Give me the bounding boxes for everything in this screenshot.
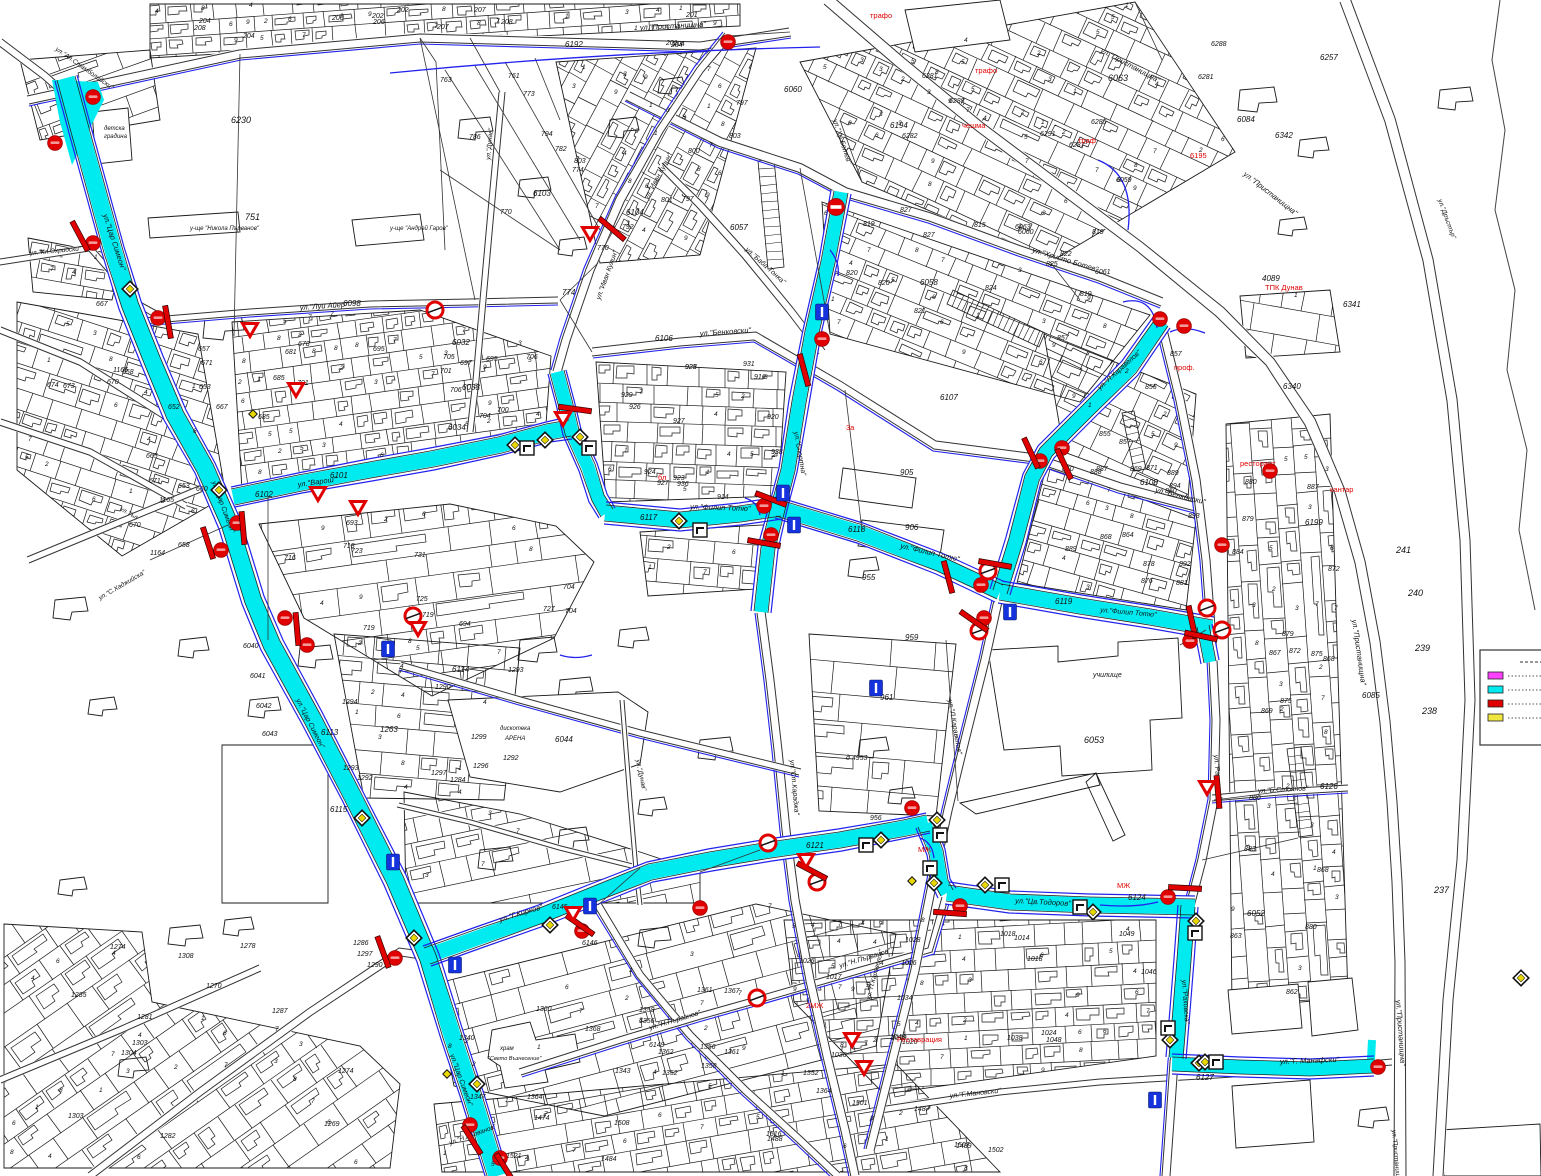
svg-text:1: 1 bbox=[47, 357, 51, 364]
svg-text:6034: 6034 bbox=[448, 423, 466, 432]
svg-text:5: 5 bbox=[268, 431, 272, 438]
svg-text:6118: 6118 bbox=[848, 525, 866, 534]
svg-text:207: 207 bbox=[473, 7, 487, 14]
svg-text:6: 6 bbox=[92, 496, 96, 503]
svg-text:5: 5 bbox=[715, 392, 719, 399]
svg-text:7: 7 bbox=[393, 337, 397, 344]
svg-text:7: 7 bbox=[738, 990, 742, 997]
svg-text:8: 8 bbox=[201, 5, 205, 12]
svg-text:803: 803 bbox=[729, 133, 741, 140]
svg-text:6230: 6230 bbox=[231, 115, 251, 125]
svg-text:2: 2 bbox=[357, 640, 362, 647]
svg-text:2: 2 bbox=[263, 18, 268, 25]
svg-text:3: 3 bbox=[690, 951, 694, 958]
svg-text:5: 5 bbox=[465, 421, 469, 428]
svg-text:8: 8 bbox=[293, 1076, 297, 1083]
svg-text:8: 8 bbox=[477, 20, 481, 27]
svg-text:701: 701 bbox=[440, 368, 452, 375]
svg-text:6342: 6342 bbox=[1275, 131, 1293, 140]
svg-text:1: 1 bbox=[582, 64, 586, 71]
svg-text:1: 1 bbox=[649, 102, 653, 109]
svg-text:7: 7 bbox=[572, 1147, 576, 1154]
svg-text:1516: 1516 bbox=[766, 1131, 782, 1138]
svg-text:3: 3 bbox=[860, 57, 864, 64]
svg-text:2: 2 bbox=[277, 448, 282, 455]
svg-text:1285: 1285 bbox=[71, 992, 87, 999]
svg-text:208: 208 bbox=[193, 25, 206, 32]
svg-text:6: 6 bbox=[288, 16, 292, 23]
svg-text:4: 4 bbox=[964, 37, 968, 44]
svg-text:920: 920 bbox=[767, 414, 779, 421]
svg-text:5: 5 bbox=[792, 923, 796, 930]
svg-text:888: 888 bbox=[1090, 469, 1102, 476]
svg-text:695: 695 bbox=[373, 346, 385, 353]
svg-text:926: 926 bbox=[629, 404, 641, 411]
svg-text:8: 8 bbox=[628, 178, 632, 185]
svg-text:3: 3 bbox=[374, 379, 378, 386]
svg-text:3: 3 bbox=[1267, 803, 1271, 810]
svg-text:1046: 1046 bbox=[1141, 969, 1157, 976]
svg-text:1: 1 bbox=[565, 13, 569, 20]
svg-text:1364: 1364 bbox=[527, 1094, 543, 1101]
svg-text:9: 9 bbox=[1072, 393, 1076, 400]
svg-text:863: 863 bbox=[1230, 933, 1242, 940]
svg-text:1036: 1036 bbox=[831, 1052, 847, 1059]
svg-text:929: 929 bbox=[621, 392, 633, 399]
svg-text:1: 1 bbox=[35, 1104, 39, 1111]
svg-text:5: 5 bbox=[1151, 431, 1155, 438]
svg-text:6057: 6057 bbox=[730, 223, 748, 232]
svg-text:3: 3 bbox=[444, 350, 448, 357]
svg-text:9: 9 bbox=[851, 986, 855, 993]
svg-text:825: 825 bbox=[1046, 261, 1058, 268]
svg-text:801: 801 bbox=[661, 197, 673, 204]
svg-text:6: 6 bbox=[1078, 1029, 1082, 1036]
svg-text:6: 6 bbox=[623, 1138, 627, 1145]
svg-text:6192: 6192 bbox=[565, 40, 583, 49]
svg-text:770: 770 bbox=[597, 245, 609, 252]
svg-text:1502: 1502 bbox=[988, 1147, 1004, 1154]
svg-text:6: 6 bbox=[397, 713, 401, 720]
svg-text:9: 9 bbox=[483, 364, 487, 371]
svg-text:906: 906 bbox=[905, 523, 919, 532]
svg-text:трафо: трафо bbox=[975, 66, 997, 75]
svg-text:1521: 1521 bbox=[506, 1153, 522, 1160]
svg-text:6288: 6288 bbox=[1211, 41, 1227, 48]
svg-text:1: 1 bbox=[885, 1136, 889, 1143]
svg-text:6041: 6041 bbox=[250, 673, 266, 680]
svg-text:869: 869 bbox=[1130, 466, 1142, 473]
svg-text:6: 6 bbox=[512, 525, 516, 532]
svg-text:652: 652 bbox=[168, 404, 180, 411]
svg-text:4: 4 bbox=[401, 692, 405, 699]
svg-text:6: 6 bbox=[824, 210, 828, 217]
svg-text:6: 6 bbox=[380, 452, 384, 459]
svg-text:725: 725 bbox=[416, 596, 428, 603]
svg-text:3: 3 bbox=[474, 383, 478, 390]
svg-text:685: 685 bbox=[273, 375, 285, 382]
svg-text:1: 1 bbox=[707, 103, 711, 110]
svg-text:7: 7 bbox=[768, 903, 772, 910]
svg-text:3: 3 bbox=[1335, 894, 1339, 901]
svg-text:7: 7 bbox=[497, 649, 501, 656]
svg-text:1014: 1014 bbox=[1014, 935, 1030, 942]
svg-text:5: 5 bbox=[683, 486, 687, 493]
svg-text:у-ще "Андрей Гаров": у-ще "Андрей Гаров" bbox=[389, 225, 449, 232]
svg-text:7: 7 bbox=[1146, 1008, 1150, 1015]
svg-text:1284: 1284 bbox=[450, 777, 466, 784]
svg-text:763: 763 bbox=[440, 77, 452, 84]
svg-text:5: 5 bbox=[708, 1083, 712, 1090]
svg-text:3: 3 bbox=[1308, 504, 1312, 511]
svg-text:1270: 1270 bbox=[206, 983, 222, 990]
svg-text:1: 1 bbox=[629, 967, 633, 974]
svg-text:800: 800 bbox=[688, 148, 700, 155]
svg-text:6084: 6084 bbox=[1237, 115, 1255, 124]
svg-text:7: 7 bbox=[838, 984, 842, 991]
svg-text:1: 1 bbox=[99, 1087, 103, 1094]
svg-text:7: 7 bbox=[595, 203, 599, 210]
svg-text:6058: 6058 bbox=[920, 278, 938, 287]
svg-text:8: 8 bbox=[1130, 513, 1134, 520]
svg-text:6: 6 bbox=[114, 402, 118, 409]
svg-text:1296: 1296 bbox=[473, 763, 489, 770]
svg-text:6: 6 bbox=[137, 1154, 141, 1161]
svg-text:4: 4 bbox=[811, 922, 815, 929]
svg-text:6: 6 bbox=[843, 1143, 847, 1150]
svg-text:9: 9 bbox=[359, 594, 363, 601]
svg-text:6257: 6257 bbox=[1320, 53, 1338, 62]
svg-text:9: 9 bbox=[1231, 906, 1235, 913]
svg-text:Реставрация: Реставрация bbox=[897, 1035, 942, 1044]
svg-text:6291: 6291 bbox=[1040, 131, 1056, 138]
svg-text:6: 6 bbox=[56, 958, 60, 965]
svg-text:6199: 6199 bbox=[1305, 518, 1323, 527]
svg-text:774: 774 bbox=[572, 167, 584, 174]
svg-text:1278: 1278 bbox=[240, 943, 256, 950]
svg-text:2: 2 bbox=[237, 379, 242, 386]
svg-text:1: 1 bbox=[1041, 119, 1045, 126]
svg-text:3: 3 bbox=[299, 1041, 303, 1048]
svg-text:4: 4 bbox=[249, 2, 253, 9]
svg-text:4: 4 bbox=[623, 150, 627, 157]
svg-text:665: 665 bbox=[146, 453, 158, 460]
svg-text:кантар: кантар bbox=[1330, 485, 1353, 494]
svg-text:4: 4 bbox=[458, 789, 462, 796]
svg-text:6040: 6040 bbox=[243, 643, 259, 650]
svg-text:731: 731 bbox=[414, 552, 426, 559]
svg-text:1361: 1361 bbox=[697, 987, 713, 994]
svg-text:770: 770 bbox=[500, 209, 512, 216]
svg-text:9: 9 bbox=[962, 349, 966, 356]
svg-text:3: 3 bbox=[572, 83, 576, 90]
svg-text:238: 238 bbox=[1421, 706, 1437, 716]
svg-text:7: 7 bbox=[462, 327, 466, 334]
svg-text:6060: 6060 bbox=[784, 85, 802, 94]
svg-text:5: 5 bbox=[300, 445, 304, 452]
svg-text:1165: 1165 bbox=[113, 367, 128, 374]
svg-text:3: 3 bbox=[1298, 965, 1302, 972]
svg-text:6149: 6149 bbox=[649, 1042, 665, 1049]
svg-text:7: 7 bbox=[927, 1105, 931, 1112]
svg-text:6113: 6113 bbox=[321, 728, 339, 737]
svg-text:8: 8 bbox=[721, 121, 725, 128]
svg-text:1364: 1364 bbox=[816, 1088, 832, 1095]
svg-text:3а: 3а bbox=[846, 423, 855, 432]
svg-text:5: 5 bbox=[971, 86, 975, 93]
svg-text:1484: 1484 bbox=[601, 1156, 617, 1163]
svg-text:9: 9 bbox=[488, 400, 492, 407]
svg-text:6: 6 bbox=[1117, 177, 1121, 184]
svg-text:3: 3 bbox=[666, 107, 670, 114]
svg-text:7: 7 bbox=[966, 107, 970, 114]
svg-text:1: 1 bbox=[505, 1097, 509, 1104]
svg-text:6: 6 bbox=[718, 83, 722, 90]
svg-text:9: 9 bbox=[614, 89, 618, 96]
svg-text:6: 6 bbox=[764, 374, 768, 381]
svg-text:3: 3 bbox=[1310, 822, 1314, 829]
svg-text:872: 872 bbox=[1289, 648, 1301, 655]
svg-text:719: 719 bbox=[363, 625, 375, 632]
svg-text:660: 660 bbox=[196, 486, 208, 493]
svg-text:884: 884 bbox=[1232, 549, 1244, 556]
svg-text:1361: 1361 bbox=[724, 1049, 740, 1056]
svg-text:875: 875 bbox=[1280, 698, 1292, 705]
svg-text:4: 4 bbox=[525, 1155, 529, 1162]
svg-text:8: 8 bbox=[1103, 323, 1107, 330]
svg-text:4: 4 bbox=[31, 975, 35, 982]
svg-text:1: 1 bbox=[443, 1150, 447, 1157]
svg-text:1028: 1028 bbox=[905, 937, 921, 944]
svg-text:4: 4 bbox=[656, 7, 660, 14]
svg-text:8: 8 bbox=[697, 166, 701, 173]
svg-text:1: 1 bbox=[958, 934, 962, 941]
svg-text:8: 8 bbox=[639, 1017, 643, 1024]
svg-text:719: 719 bbox=[422, 612, 434, 619]
svg-text:819: 819 bbox=[863, 221, 875, 228]
svg-text:5: 5 bbox=[66, 321, 70, 328]
svg-text:МЖ: МЖ bbox=[918, 845, 931, 854]
svg-text:1358: 1358 bbox=[639, 1007, 655, 1014]
svg-text:5: 5 bbox=[1096, 29, 1100, 36]
svg-text:3: 3 bbox=[1086, 584, 1090, 591]
svg-text:1360: 1360 bbox=[536, 1006, 552, 1013]
svg-text:2: 2 bbox=[1279, 706, 1284, 713]
svg-text:6042: 6042 bbox=[256, 703, 272, 710]
svg-text:градина: градина bbox=[104, 134, 128, 140]
svg-text:5: 5 bbox=[750, 451, 754, 458]
svg-text:7: 7 bbox=[516, 828, 520, 835]
svg-text:6: 6 bbox=[1135, 989, 1139, 996]
svg-text:храм: храм bbox=[499, 1046, 514, 1052]
svg-text:1: 1 bbox=[1294, 292, 1298, 299]
svg-text:3: 3 bbox=[126, 1068, 130, 1075]
svg-text:2: 2 bbox=[160, 498, 165, 505]
svg-text:7: 7 bbox=[709, 142, 713, 149]
svg-text:у-ще "Никола Първанов": у-ще "Никола Първанов" bbox=[189, 226, 260, 232]
svg-text:6063: 6063 bbox=[1108, 73, 1128, 83]
svg-text:782: 782 bbox=[555, 146, 567, 153]
svg-text:4: 4 bbox=[536, 411, 540, 418]
svg-text:1508: 1508 bbox=[614, 1120, 630, 1127]
svg-text:6102: 6102 bbox=[255, 490, 273, 499]
svg-text:2: 2 bbox=[1061, 129, 1066, 136]
svg-text:6085: 6085 bbox=[1362, 691, 1380, 700]
svg-text:1: 1 bbox=[976, 312, 980, 319]
svg-text:5: 5 bbox=[756, 1114, 760, 1121]
svg-text:4: 4 bbox=[483, 699, 487, 706]
svg-text:1287: 1287 bbox=[272, 1008, 289, 1015]
svg-text:2: 2 bbox=[370, 689, 375, 696]
svg-text:6117: 6117 bbox=[640, 513, 658, 522]
svg-text:1352: 1352 bbox=[662, 1070, 678, 1077]
svg-text:653: 653 bbox=[199, 384, 211, 391]
svg-text:1308: 1308 bbox=[178, 953, 194, 960]
svg-text:827: 827 bbox=[923, 232, 936, 239]
svg-text:2: 2 bbox=[1036, 50, 1041, 57]
svg-text:956: 956 bbox=[870, 815, 882, 822]
svg-text:1343: 1343 bbox=[615, 1068, 631, 1075]
svg-text:7: 7 bbox=[1315, 601, 1319, 608]
svg-text:773: 773 bbox=[523, 91, 535, 98]
svg-text:7: 7 bbox=[481, 861, 485, 868]
svg-text:7: 7 bbox=[1025, 158, 1029, 165]
svg-text:2: 2 bbox=[1041, 210, 1046, 217]
svg-text:868: 868 bbox=[1317, 867, 1329, 874]
svg-text:8: 8 bbox=[109, 356, 113, 363]
svg-text:7: 7 bbox=[703, 569, 707, 576]
svg-text:6053: 6053 bbox=[1084, 735, 1104, 745]
svg-text:4: 4 bbox=[1133, 968, 1137, 975]
svg-text:1286: 1286 bbox=[353, 940, 369, 947]
svg-text:685: 685 bbox=[258, 414, 270, 421]
svg-text:8: 8 bbox=[935, 69, 939, 76]
svg-text:1016: 1016 bbox=[901, 960, 917, 967]
svg-text:931: 931 bbox=[743, 361, 755, 368]
svg-text:7: 7 bbox=[1334, 605, 1338, 612]
svg-text:862: 862 bbox=[1286, 989, 1298, 996]
svg-text:1: 1 bbox=[94, 254, 98, 261]
svg-text:8: 8 bbox=[242, 358, 246, 365]
svg-text:6: 6 bbox=[422, 511, 426, 518]
svg-text:5: 5 bbox=[419, 354, 423, 361]
svg-text:695: 695 bbox=[486, 356, 498, 363]
svg-text:6: 6 bbox=[1064, 198, 1068, 205]
svg-text:1501: 1501 bbox=[852, 1100, 868, 1107]
svg-text:7: 7 bbox=[1095, 167, 1099, 174]
svg-text:4: 4 bbox=[112, 950, 116, 957]
svg-text:8: 8 bbox=[682, 114, 686, 121]
svg-text:8: 8 bbox=[915, 247, 919, 254]
svg-text:827: 827 bbox=[900, 207, 913, 214]
svg-text:8: 8 bbox=[334, 345, 338, 352]
svg-text:857: 857 bbox=[1057, 335, 1070, 342]
svg-text:1026: 1026 bbox=[799, 958, 815, 965]
svg-text:905: 905 bbox=[900, 468, 914, 477]
svg-text:875: 875 bbox=[1311, 651, 1323, 658]
svg-text:1034: 1034 bbox=[897, 995, 913, 1002]
svg-text:2: 2 bbox=[624, 995, 629, 1002]
svg-text:5: 5 bbox=[416, 645, 420, 652]
svg-text:6103: 6103 bbox=[533, 189, 551, 198]
svg-text:3: 3 bbox=[1252, 602, 1256, 609]
svg-text:889: 889 bbox=[1167, 470, 1179, 477]
svg-text:2: 2 bbox=[471, 1061, 476, 1068]
svg-text:6032: 6032 bbox=[452, 338, 470, 347]
svg-text:207: 207 bbox=[436, 24, 450, 31]
svg-text:927: 927 bbox=[673, 418, 686, 425]
svg-text:6114: 6114 bbox=[452, 665, 470, 674]
svg-text:674: 674 bbox=[47, 382, 59, 389]
svg-text:7: 7 bbox=[302, 32, 306, 39]
svg-text:667: 667 bbox=[216, 404, 229, 411]
svg-text:2: 2 bbox=[872, 1037, 877, 1044]
svg-text:6: 6 bbox=[1330, 545, 1334, 552]
svg-text:1: 1 bbox=[1088, 402, 1092, 409]
svg-text:5: 5 bbox=[823, 64, 827, 71]
svg-text:7: 7 bbox=[275, 1026, 279, 1033]
svg-text:2: 2 bbox=[900, 76, 905, 83]
svg-text:7: 7 bbox=[50, 266, 54, 273]
svg-text:3: 3 bbox=[93, 330, 97, 337]
svg-text:1: 1 bbox=[458, 765, 462, 772]
svg-text:1: 1 bbox=[129, 488, 133, 495]
svg-text:872: 872 bbox=[1328, 566, 1340, 573]
svg-text:1: 1 bbox=[257, 376, 261, 383]
svg-text:1164: 1164 bbox=[150, 550, 165, 557]
svg-text:8: 8 bbox=[355, 342, 359, 349]
svg-text:4: 4 bbox=[144, 389, 148, 396]
svg-text:6115: 6115 bbox=[330, 805, 348, 814]
svg-text:1: 1 bbox=[1073, 88, 1077, 95]
svg-text:7: 7 bbox=[111, 1051, 115, 1058]
svg-text:879: 879 bbox=[1282, 631, 1294, 638]
svg-text:2: 2 bbox=[962, 1017, 967, 1024]
svg-text:7: 7 bbox=[431, 371, 435, 378]
svg-text:2: 2 bbox=[740, 393, 745, 400]
svg-text:3: 3 bbox=[1018, 223, 1022, 230]
svg-text:3: 3 bbox=[898, 120, 902, 127]
svg-text:1038: 1038 bbox=[1007, 1035, 1023, 1042]
svg-text:7: 7 bbox=[838, 921, 842, 928]
svg-text:206: 206 bbox=[372, 19, 385, 26]
svg-text:2: 2 bbox=[703, 1025, 708, 1032]
svg-text:9: 9 bbox=[340, 13, 344, 20]
svg-text:8: 8 bbox=[401, 760, 405, 767]
svg-text:4: 4 bbox=[1062, 555, 1066, 562]
svg-text:869: 869 bbox=[1261, 708, 1273, 715]
svg-text:1299: 1299 bbox=[471, 734, 487, 741]
svg-text:2: 2 bbox=[383, 516, 388, 523]
svg-text:241: 241 bbox=[1395, 545, 1411, 555]
svg-text:9: 9 bbox=[1133, 185, 1137, 192]
svg-text:857: 857 bbox=[1170, 351, 1183, 358]
svg-text:867: 867 bbox=[1269, 650, 1282, 657]
svg-text:7: 7 bbox=[700, 1124, 704, 1131]
svg-text:6124: 6124 bbox=[1128, 893, 1146, 902]
svg-text:880: 880 bbox=[1249, 795, 1261, 802]
svg-text:6: 6 bbox=[875, 132, 879, 139]
svg-text:7: 7 bbox=[308, 314, 312, 321]
svg-text:2: 2 bbox=[771, 452, 776, 459]
svg-text:1: 1 bbox=[1125, 2, 1129, 9]
svg-text:ТПК Дунав: ТПК Дунав bbox=[1265, 283, 1303, 292]
svg-text:924: 924 bbox=[644, 469, 656, 476]
svg-text:9: 9 bbox=[931, 158, 935, 165]
svg-text:5: 5 bbox=[528, 357, 532, 364]
svg-text:проф.: проф. bbox=[1174, 363, 1195, 372]
svg-text:5: 5 bbox=[1269, 545, 1273, 552]
